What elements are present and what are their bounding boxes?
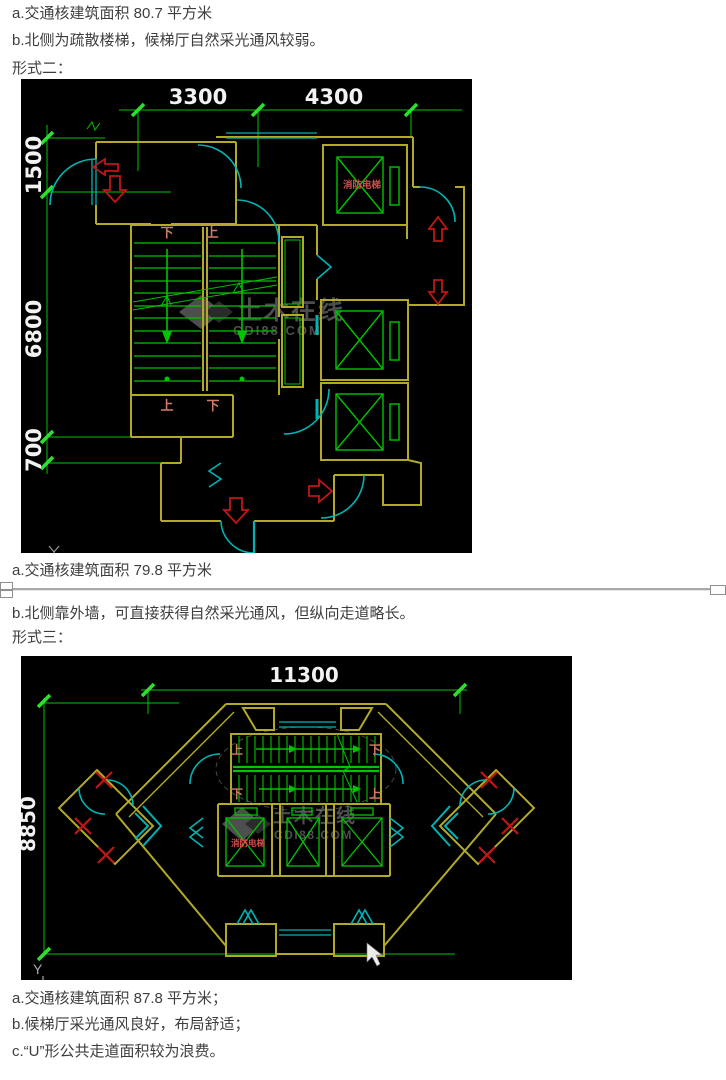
dim-label-700: 700	[22, 428, 46, 472]
stair-label-down-left: 下	[231, 787, 243, 801]
stair-label-down-bottom: 下	[206, 398, 219, 413]
form3-waste-line: c.“U”形公共走道面积较为浪费。	[0, 1042, 225, 1062]
dim-label-8850: 8850	[21, 796, 40, 852]
dim-label-1500: 1500	[22, 136, 46, 194]
stair-label-up-bottom: 上	[160, 398, 173, 413]
document-page: a.交通核建筑面积 80.7 平方米 b.北侧为疏散楼梯，候梯厅自然采光通风较弱…	[0, 0, 726, 1080]
divider-handle-left-top[interactable]	[0, 582, 13, 590]
divider-handle-right[interactable]	[710, 585, 726, 595]
section-divider	[0, 582, 726, 598]
divider-handle-left-bottom[interactable]	[0, 590, 13, 598]
dim-label-11300: 11300	[269, 663, 339, 687]
cad-drawing-form2: 土木在线 CDI88.COM 3300 4300	[21, 79, 472, 553]
stair-label-down-top: 下	[160, 225, 173, 240]
cad-drawing-form3: 土木在线 CDI88.COM 11300 8850	[21, 656, 572, 980]
watermark-site: CDI88.COM	[274, 828, 353, 842]
stair-label-up-top: 上	[205, 225, 218, 240]
axis-y-label: Y	[33, 961, 43, 977]
cad-svg-form2: 土木在线 CDI88.COM 3300 4300	[21, 79, 472, 553]
dim-label-6800: 6800	[22, 300, 46, 358]
divider-line	[0, 588, 726, 591]
form2-result-line: a.交通核建筑面积 79.8 平方米	[0, 561, 212, 581]
form3-heading: 形式三：	[0, 628, 72, 648]
dim-label-3300: 3300	[169, 85, 227, 109]
dim-label-4300: 4300	[305, 85, 363, 109]
form3-area-line: a.交通核建筑面积 87.8 平方米；	[0, 989, 227, 1009]
form2-heading: 形式二：	[0, 59, 72, 79]
cad-svg-form3: 土木在线 CDI88.COM 11300 8850	[21, 656, 572, 980]
stair-label-down-right: 下	[369, 743, 381, 757]
stair-label-up-left: 上	[231, 742, 243, 757]
form2-note-line: b.北侧为疏散楼梯，候梯厅自然采光通风较弱。	[0, 31, 325, 51]
fire-elevator-label: 消防电梯	[231, 838, 266, 848]
stair-label-up-right: 上	[369, 786, 381, 801]
form3-comfort-line: b.候梯厅采光通风良好，布局舒适；	[0, 1015, 250, 1035]
form3-note-line: b.北侧靠外墙，可直接获得自然采光通风，但纵向走道略长。	[0, 604, 415, 624]
watermark: 土木在线 CDI88.COM	[222, 804, 357, 842]
fire-elevator-label: 消防电梯	[343, 179, 382, 191]
form2-area-line: a.交通核建筑面积 80.7 平方米	[0, 4, 212, 24]
